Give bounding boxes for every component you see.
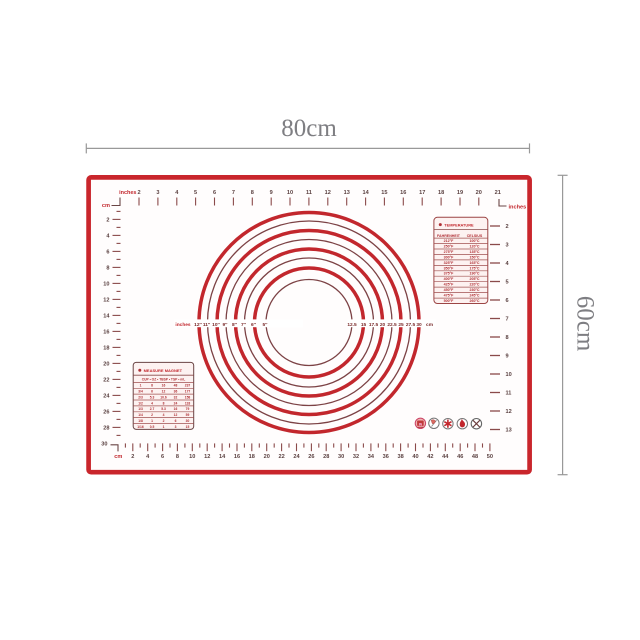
svg-text:175°C: 175°C	[469, 266, 479, 270]
svg-text:38: 38	[397, 454, 403, 460]
svg-text:8: 8	[151, 384, 153, 388]
svg-text:230°C: 230°C	[469, 288, 479, 292]
svg-text:400°F: 400°F	[444, 277, 454, 281]
svg-text:2/3: 2/3	[138, 396, 143, 400]
svg-text:237: 237	[185, 384, 191, 388]
svg-text:500°F: 500°F	[444, 299, 454, 303]
svg-text:13: 13	[344, 190, 350, 196]
svg-text:1: 1	[163, 425, 165, 429]
svg-text:2: 2	[131, 454, 134, 460]
svg-text:32: 32	[174, 396, 178, 400]
svg-text:16: 16	[174, 407, 178, 411]
svg-text:26: 26	[308, 454, 314, 460]
svg-text:1/16: 1/16	[137, 425, 144, 429]
svg-text:3: 3	[175, 425, 177, 429]
svg-text:275°F: 275°F	[444, 250, 454, 254]
svg-text:48: 48	[174, 384, 178, 388]
svg-text:inches: inches	[509, 205, 527, 211]
svg-text:36: 36	[383, 454, 389, 460]
svg-text:14: 14	[103, 313, 110, 319]
svg-text:7″: 7″	[241, 322, 247, 328]
svg-text:158: 158	[185, 396, 191, 400]
svg-text:25: 25	[398, 322, 404, 328]
svg-text:6: 6	[106, 249, 109, 255]
svg-text:28: 28	[323, 454, 329, 460]
svg-text:24: 24	[293, 454, 300, 460]
svg-text:8: 8	[163, 401, 165, 405]
svg-text:135°C: 135°C	[469, 250, 479, 254]
svg-text:30: 30	[338, 454, 344, 460]
svg-text:165°C: 165°C	[469, 261, 479, 265]
svg-text:300°F: 300°F	[444, 255, 454, 259]
svg-text:26: 26	[103, 409, 109, 415]
svg-text:450°F: 450°F	[444, 288, 454, 292]
svg-text:16: 16	[234, 454, 240, 460]
svg-text:212°F: 212°F	[444, 239, 454, 243]
svg-text:46: 46	[457, 454, 463, 460]
svg-text:18: 18	[438, 190, 444, 196]
svg-text:MEASURE MAGNET: MEASURE MAGNET	[144, 368, 183, 373]
svg-text:5″: 5″	[263, 322, 269, 328]
svg-text:30: 30	[186, 419, 190, 423]
svg-text:425°F: 425°F	[444, 283, 454, 287]
svg-text:IN: IN	[419, 423, 423, 427]
svg-text:inches: inches	[119, 190, 136, 196]
svg-text:12.5: 12.5	[347, 322, 357, 328]
svg-text:6: 6	[213, 190, 216, 196]
svg-text:190°C: 190°C	[469, 272, 479, 276]
svg-text:17.5: 17.5	[369, 322, 379, 328]
svg-text:20: 20	[476, 190, 482, 196]
svg-text:16: 16	[103, 329, 109, 335]
svg-text:10″: 10″	[212, 322, 220, 328]
svg-text:5.3: 5.3	[150, 396, 155, 400]
svg-text:5: 5	[194, 190, 197, 196]
svg-text:3/4: 3/4	[138, 390, 143, 394]
svg-text:60cm: 60cm	[572, 296, 599, 352]
svg-text:50: 50	[487, 454, 493, 460]
svg-text:TEMPERATURE: TEMPERATURE	[444, 222, 474, 227]
svg-text:10: 10	[103, 281, 109, 287]
svg-text:1: 1	[151, 419, 153, 423]
svg-text:120°C: 120°C	[469, 245, 479, 249]
svg-text:245°C: 245°C	[469, 294, 479, 298]
svg-text:20: 20	[264, 454, 270, 460]
svg-text:28: 28	[103, 425, 109, 431]
svg-text:3: 3	[156, 190, 159, 196]
svg-text:48: 48	[472, 454, 478, 460]
svg-text:34: 34	[368, 454, 375, 460]
svg-text:44: 44	[442, 454, 449, 460]
svg-text:8″: 8″	[232, 322, 238, 328]
svg-text:11: 11	[306, 190, 312, 196]
svg-text:220°C: 220°C	[469, 283, 479, 287]
svg-text:27.5: 27.5	[406, 322, 416, 328]
svg-text:6: 6	[161, 454, 164, 460]
svg-text:2: 2	[106, 217, 109, 223]
svg-text:13: 13	[506, 428, 512, 434]
svg-text:2: 2	[137, 190, 140, 196]
svg-text:1/2: 1/2	[138, 401, 143, 405]
svg-text:30: 30	[416, 322, 422, 328]
svg-text:30: 30	[101, 441, 107, 447]
svg-text:14: 14	[362, 190, 369, 196]
svg-text:325°F: 325°F	[444, 261, 454, 265]
svg-text:100°C: 100°C	[469, 239, 479, 243]
svg-text:15: 15	[186, 425, 190, 429]
svg-text:24: 24	[174, 401, 178, 405]
svg-text:16: 16	[400, 190, 406, 196]
svg-text:6: 6	[506, 298, 509, 304]
svg-text:4: 4	[163, 413, 165, 417]
svg-text:350°F: 350°F	[444, 266, 454, 270]
svg-text:9: 9	[506, 354, 509, 360]
svg-text:59: 59	[186, 413, 190, 417]
svg-text:10: 10	[287, 190, 293, 196]
svg-text:8: 8	[176, 454, 179, 460]
svg-text:CUP • OZ • TBSP • TSP • mL: CUP • OZ • TBSP • TSP • mL	[142, 378, 185, 382]
svg-text:cm: cm	[102, 203, 110, 209]
svg-text:22.5: 22.5	[387, 322, 397, 328]
svg-text:12: 12	[162, 390, 166, 394]
svg-text:cm: cm	[426, 323, 433, 328]
svg-text:177: 177	[185, 390, 191, 394]
svg-text:inches: inches	[175, 322, 191, 328]
svg-text:12: 12	[325, 190, 331, 196]
svg-text:10.6: 10.6	[160, 396, 167, 400]
svg-text:12: 12	[204, 454, 210, 460]
svg-text:475°F: 475°F	[444, 294, 454, 298]
svg-text:250°F: 250°F	[444, 245, 454, 249]
svg-text:8: 8	[506, 335, 509, 341]
svg-text:1/3: 1/3	[138, 407, 143, 411]
svg-text:12″: 12″	[194, 322, 202, 328]
svg-text:32: 32	[353, 454, 359, 460]
svg-text:15: 15	[381, 190, 387, 196]
svg-text:79: 79	[186, 407, 190, 411]
svg-text:6: 6	[151, 390, 153, 394]
svg-text:2: 2	[151, 413, 153, 417]
svg-text:42: 42	[427, 454, 433, 460]
svg-text:1/8: 1/8	[138, 419, 143, 423]
svg-text:15: 15	[361, 322, 367, 328]
svg-text:22: 22	[278, 454, 284, 460]
svg-text:6: 6	[175, 419, 177, 423]
svg-text:80cm: 80cm	[281, 115, 337, 142]
svg-text:260°C: 260°C	[469, 299, 479, 303]
svg-text:5: 5	[506, 280, 509, 286]
svg-text:8: 8	[251, 190, 254, 196]
svg-text:6″: 6″	[251, 322, 257, 328]
svg-text:12: 12	[103, 297, 109, 303]
svg-text:205°C: 205°C	[469, 277, 479, 281]
svg-text:11: 11	[506, 391, 512, 397]
svg-text:22: 22	[103, 377, 109, 383]
svg-text:21: 21	[495, 190, 501, 196]
svg-text:cm: cm	[114, 454, 122, 460]
svg-text:18: 18	[103, 345, 109, 351]
svg-text:150°C: 150°C	[469, 255, 479, 259]
svg-text:20: 20	[380, 322, 386, 328]
svg-text:17: 17	[419, 190, 425, 196]
svg-text:10: 10	[189, 454, 195, 460]
svg-text:9: 9	[270, 190, 273, 196]
svg-text:2.7: 2.7	[150, 407, 155, 411]
svg-text:FAHRENHEIT: FAHRENHEIT	[437, 234, 461, 238]
svg-text:3: 3	[506, 243, 509, 249]
svg-text:4: 4	[151, 401, 153, 405]
svg-text:36: 36	[174, 390, 178, 394]
svg-text:375°F: 375°F	[444, 272, 454, 276]
svg-text:11″: 11″	[203, 322, 211, 328]
svg-text:24: 24	[103, 393, 110, 399]
svg-text:2: 2	[506, 224, 509, 230]
svg-text:40: 40	[412, 454, 418, 460]
svg-text:18: 18	[249, 454, 255, 460]
svg-text:5.3: 5.3	[161, 407, 166, 411]
svg-text:1: 1	[140, 384, 142, 388]
svg-text:20: 20	[103, 361, 109, 367]
svg-text:CELSIUS: CELSIUS	[467, 234, 483, 238]
svg-text:9″: 9″	[223, 322, 229, 328]
svg-text:12: 12	[506, 409, 512, 415]
svg-text:7: 7	[232, 190, 235, 196]
svg-text:1/4: 1/4	[138, 413, 143, 417]
svg-text:7: 7	[506, 317, 509, 323]
svg-text:2: 2	[163, 419, 165, 423]
svg-text:12: 12	[174, 413, 178, 417]
svg-text:8: 8	[106, 265, 109, 271]
svg-text:16: 16	[162, 384, 166, 388]
svg-text:118: 118	[185, 401, 190, 405]
svg-text:19: 19	[457, 190, 463, 196]
svg-text:0.5: 0.5	[150, 425, 155, 429]
svg-text:14: 14	[219, 454, 226, 460]
svg-text:10: 10	[506, 372, 512, 378]
